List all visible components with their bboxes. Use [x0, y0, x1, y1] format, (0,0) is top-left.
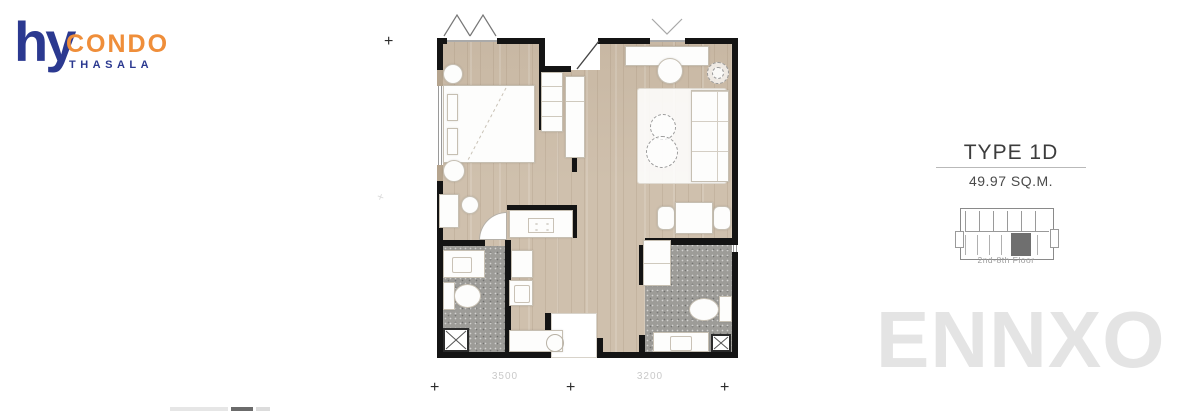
plant-inner	[712, 67, 724, 79]
sofa	[691, 90, 729, 182]
kitchen-sink	[546, 334, 564, 352]
fridge	[511, 250, 533, 278]
shower-drain-box	[443, 328, 469, 352]
cropped-artifact	[231, 407, 253, 411]
casement-window-icon	[441, 10, 501, 38]
nightstand-lamp	[443, 64, 463, 84]
bathroom-cabinet	[643, 240, 671, 286]
toilet-bowl	[689, 298, 719, 321]
building-keyplan	[960, 208, 1054, 260]
dining-table	[675, 202, 713, 234]
bathroom-sink-counter	[653, 332, 709, 352]
wardrobe	[565, 76, 585, 158]
wall-post	[437, 165, 443, 181]
wall-segment	[597, 338, 603, 358]
plus-marker: +	[384, 34, 393, 50]
cropped-artifact	[170, 407, 228, 411]
toilet-bowl	[454, 284, 481, 308]
logo-brand-text: CONDO	[66, 30, 169, 59]
unit-area-label: 49.97 SQ.M.	[935, 173, 1087, 189]
nightstand-lamp	[443, 160, 465, 182]
wall-segment	[639, 335, 645, 352]
toilet-tank	[719, 296, 732, 322]
plus-marker: +	[430, 380, 439, 396]
wall-segment	[685, 38, 738, 44]
plus-marker: +	[720, 380, 729, 396]
shower-drain-box	[711, 334, 731, 352]
wall-segment	[437, 38, 443, 70]
dining-chair	[657, 206, 675, 230]
dining-chair	[713, 206, 731, 230]
dimension-label-right: 3200	[615, 371, 685, 382]
keyplan-bottom-units	[965, 235, 1049, 255]
plus-marker-faint: +	[375, 189, 386, 205]
keyplan-floor-caption: 2nd-8th Floor	[946, 255, 1066, 265]
shelf-line	[644, 263, 670, 264]
wardrobe	[541, 72, 563, 132]
dimension-label-left: 3500	[470, 371, 540, 382]
prep-sink	[514, 285, 530, 303]
coffee-table	[646, 136, 678, 168]
title-divider	[936, 167, 1086, 168]
keyplan-unit-highlight	[1011, 233, 1031, 256]
kitchen-counter	[509, 210, 573, 238]
unit-type-title: TYPE 1D	[935, 141, 1087, 165]
basin	[670, 336, 692, 351]
wall-segment	[732, 252, 738, 358]
floorplan-page: { "logo": { "mark": "hy", "brand": "COND…	[0, 0, 1200, 411]
wall-segment	[437, 240, 485, 246]
vent-window-icon	[647, 16, 687, 38]
keyplan-right-wing	[1050, 229, 1059, 248]
keyplan-left-wing	[955, 231, 964, 248]
window-sill	[447, 40, 497, 42]
shelf-line	[566, 101, 584, 102]
plus-marker: +	[566, 380, 575, 396]
kitchen-counter	[509, 280, 533, 306]
blanket-fold	[444, 86, 534, 162]
desk-chair	[657, 58, 683, 84]
bed	[443, 85, 535, 163]
keyplan-top-units	[965, 211, 1049, 232]
logo-subbrand-text: THASALA	[69, 59, 153, 71]
window-sill	[650, 40, 685, 42]
x-mark-icon	[445, 330, 467, 350]
wall-segment	[732, 38, 738, 238]
floorplan	[435, 28, 741, 362]
logo-hy-mark: hy	[14, 14, 73, 70]
kitchen-counter	[509, 330, 563, 352]
vanity-table	[439, 194, 459, 228]
bathroom-sink-counter	[443, 250, 485, 278]
entry-door-swing	[573, 38, 603, 72]
wall-segment	[497, 38, 545, 44]
wall-segment	[598, 38, 650, 44]
watermark-text: ENNXO	[876, 300, 1166, 380]
cropped-artifact	[256, 407, 270, 411]
x-mark-icon	[713, 336, 729, 350]
cooktop	[528, 218, 554, 233]
plant-icon	[707, 62, 729, 84]
vanity-stool	[461, 196, 479, 214]
basin	[452, 257, 472, 273]
sofa-back-line	[717, 91, 718, 181]
